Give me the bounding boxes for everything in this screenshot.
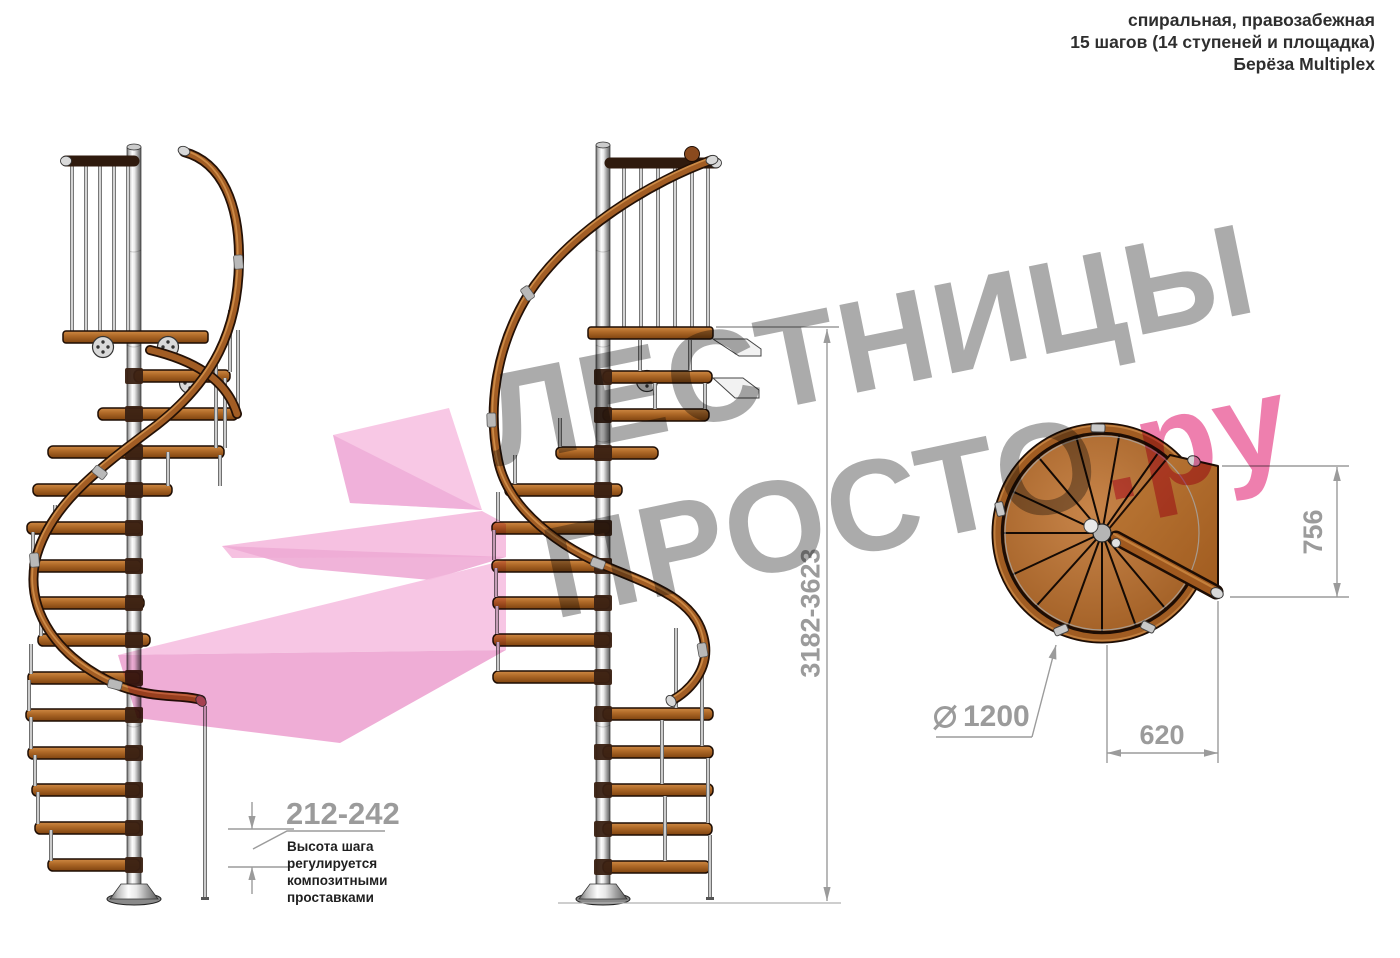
drawing-page: ЛЕСТНИЦЫ ПРОСТО.ру спиральная, правозабе…: [0, 0, 1400, 958]
spec-header: спиральная, правозабежная 15 шагов (14 с…: [1070, 9, 1375, 75]
spec-material: Берёза Multiplex: [1070, 53, 1375, 75]
spec-steps: 15 шагов (14 ступеней и площадка): [1070, 31, 1375, 53]
step-height-note: Высота шага регулируется композитными пр…: [287, 838, 387, 906]
top-plan-view: [995, 424, 1226, 641]
left-staircase-view: [26, 144, 244, 905]
dimension-step-height-label: 212-242: [286, 796, 400, 832]
spec-type: спиральная, правозабежная: [1070, 9, 1375, 31]
dimension-landing-depth-label: 756: [1298, 482, 1326, 582]
technical-drawing-canvas: [0, 0, 1400, 958]
center-staircase-view: [487, 142, 761, 905]
dimension-total-height-label: 3182-3623: [796, 531, 826, 696]
dimension-diameter-label: 1200: [934, 700, 1030, 734]
diameter-symbol-icon: [934, 706, 956, 728]
dimension-landing-width-label: 620: [1112, 720, 1212, 748]
